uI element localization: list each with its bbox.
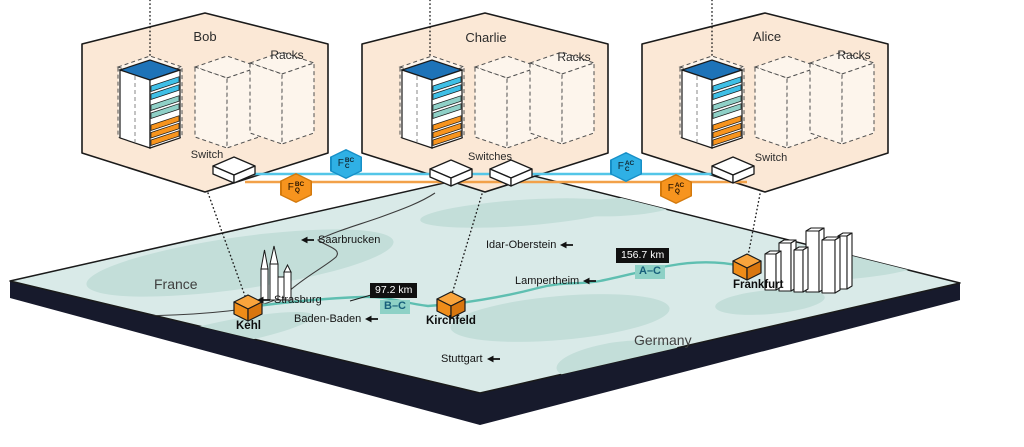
rack-dashed-outline [250, 52, 314, 144]
city-label-strasburg: Strasburg [257, 294, 322, 306]
server-rack-icon [120, 60, 180, 148]
server-rack-icon [682, 60, 742, 148]
route-badge-bc: B–C [380, 300, 410, 314]
city-label-baden-baden: Baden-Baden [294, 313, 378, 325]
city-marker-icon [560, 241, 573, 249]
city-label-saarbrucken: Saarbrucken [301, 234, 380, 246]
city-marker-icon [487, 355, 500, 363]
city-marker-icon [365, 315, 378, 323]
rack-dashed-outline [530, 52, 594, 144]
city-marker-icon [583, 277, 596, 285]
city-label-stuttgart: Stuttgart [441, 353, 500, 365]
station-label-frankfurt: Frankfurt [733, 279, 783, 291]
rack-dashed-outline [755, 56, 819, 148]
station-label-kirchfeld: Kirchfeld [426, 315, 476, 327]
classical-fiber-badge-bc: FBCC [330, 149, 362, 179]
country-label-france: France [154, 276, 198, 292]
quantum-network-figure: Bob Racks Switch Charlie Racks Switches … [0, 0, 1024, 447]
diagram-artwork [0, 0, 1024, 447]
racks-label-charlie: Racks [557, 50, 590, 64]
rack-dashed-outline [475, 56, 539, 148]
rack-dashed-outline [195, 56, 259, 148]
quantum-fiber-badge-ac: FACQ [660, 174, 692, 204]
switches-label-charlie: Switches [468, 151, 512, 163]
distance-badge-ac: 156.7 km [616, 248, 669, 263]
quantum-fiber-badge-bc: FBCQ [280, 173, 312, 203]
country-label-germany: Germany [634, 332, 692, 348]
node-name-alice: Alice [753, 29, 781, 44]
route-badge-ac: A–C [635, 265, 665, 279]
distance-badge-bc: 97.2 km [370, 283, 417, 298]
city-marker-icon [301, 236, 314, 244]
city-label-idar-oberstein: Idar-Oberstein [486, 239, 573, 251]
city-label-lampertheim: Lampertheim [515, 275, 596, 287]
racks-label-bob: Racks [270, 48, 303, 62]
city-marker-icon [257, 296, 270, 304]
switch-label-bob: Switch [191, 149, 223, 161]
station-label-kehl: Kehl [236, 320, 261, 332]
racks-label-alice: Racks [837, 48, 870, 62]
node-name-charlie: Charlie [465, 30, 506, 45]
classical-fiber-badge-ac: FACC [610, 152, 642, 182]
rack-dashed-outline [810, 52, 874, 144]
server-rack-icon [402, 60, 462, 148]
switch-label-alice: Switch [755, 152, 787, 164]
node-name-bob: Bob [193, 29, 216, 44]
